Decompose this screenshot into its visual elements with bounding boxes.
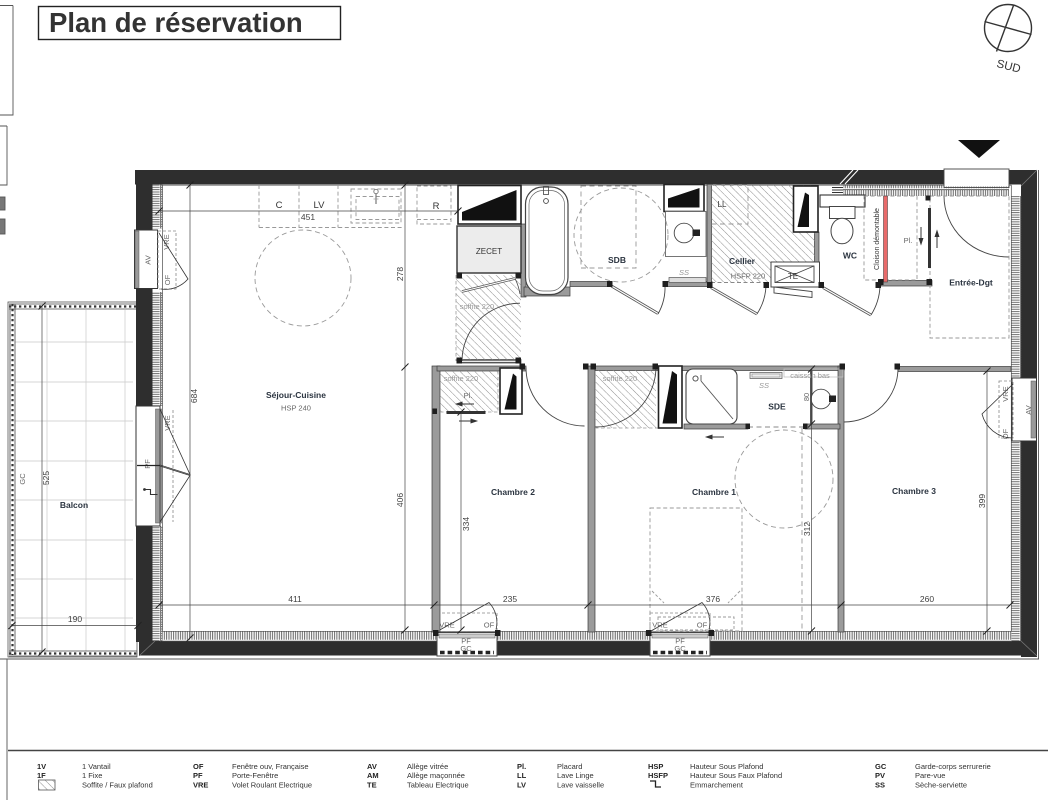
svg-text:PV: PV xyxy=(875,771,885,780)
svg-text:SDB: SDB xyxy=(608,255,626,265)
svg-text:Entrée-Dgt: Entrée-Dgt xyxy=(949,278,993,288)
svg-text:334: 334 xyxy=(461,517,471,531)
svg-text:SS: SS xyxy=(759,381,769,390)
svg-text:Plan de réservation: Plan de réservation xyxy=(49,7,303,38)
svg-text:Chambre 1: Chambre 1 xyxy=(692,487,736,497)
svg-text:Lave Linge: Lave Linge xyxy=(557,771,594,780)
svg-text:GC: GC xyxy=(875,762,887,771)
svg-text:AV: AV xyxy=(144,255,153,264)
svg-text:Volet Roulant Electrique: Volet Roulant Electrique xyxy=(232,781,312,790)
svg-text:VRE: VRE xyxy=(193,781,208,790)
svg-text:1V: 1V xyxy=(37,762,46,771)
svg-text:C: C xyxy=(276,200,283,211)
svg-text:GC: GC xyxy=(674,644,686,653)
svg-text:OF: OF xyxy=(697,621,708,630)
svg-text:399: 399 xyxy=(977,494,987,508)
svg-text:VRE: VRE xyxy=(652,621,667,630)
svg-text:312: 312 xyxy=(802,522,812,536)
svg-text:Balcon: Balcon xyxy=(60,500,88,510)
svg-text:caisson bas: caisson bas xyxy=(790,371,830,380)
svg-text:Pl.: Pl. xyxy=(464,391,473,400)
svg-text:451: 451 xyxy=(301,212,315,222)
svg-text:Soffite / Faux plafond: Soffite / Faux plafond xyxy=(82,781,153,790)
svg-text:Emmarchement: Emmarchement xyxy=(690,781,744,790)
svg-text:GC: GC xyxy=(460,644,472,653)
svg-text:525: 525 xyxy=(41,471,51,485)
svg-text:411: 411 xyxy=(288,594,302,604)
svg-text:Hauteur Sous Plafond: Hauteur Sous Plafond xyxy=(690,762,763,771)
svg-text:GC: GC xyxy=(18,473,27,485)
svg-text:soffite 220: soffite 220 xyxy=(460,302,494,311)
svg-text:Séjour-Cuisine: Séjour-Cuisine xyxy=(266,390,326,400)
svg-text:190: 190 xyxy=(68,614,82,624)
svg-text:LL: LL xyxy=(718,200,727,209)
svg-text:HSP: HSP xyxy=(648,762,663,771)
svg-text:HSP 240: HSP 240 xyxy=(281,404,311,413)
svg-text:AV: AV xyxy=(1024,405,1033,414)
svg-text:OF: OF xyxy=(193,762,204,771)
svg-text:soffite 220: soffite 220 xyxy=(444,374,478,383)
svg-text:Allège vitrée: Allège vitrée xyxy=(407,762,448,771)
svg-text:HSFP: HSFP xyxy=(648,771,668,780)
svg-text:Chambre 3: Chambre 3 xyxy=(892,486,936,496)
svg-text:260: 260 xyxy=(920,594,934,604)
svg-text:684: 684 xyxy=(189,389,199,403)
svg-text:HSFP 220: HSFP 220 xyxy=(731,272,765,281)
svg-text:Chambre 2: Chambre 2 xyxy=(491,487,535,497)
svg-text:Cloison démontable: Cloison démontable xyxy=(874,208,881,270)
svg-text:ZECET: ZECET xyxy=(476,247,502,256)
svg-text:278: 278 xyxy=(395,267,405,281)
svg-text:Placard: Placard xyxy=(557,762,582,771)
svg-text:235: 235 xyxy=(503,594,517,604)
svg-text:SS: SS xyxy=(875,781,885,790)
svg-text:Pare-vue: Pare-vue xyxy=(915,771,945,780)
svg-text:Lave vaisselle: Lave vaisselle xyxy=(557,781,604,790)
svg-text:OF: OF xyxy=(163,274,172,285)
svg-text:Hauteur Sous Faux Plafond: Hauteur Sous Faux Plafond xyxy=(690,771,782,780)
svg-text:LV: LV xyxy=(314,200,326,211)
svg-text:1 Vantail: 1 Vantail xyxy=(82,762,111,771)
svg-text:Garde-corps serrurerie: Garde-corps serrurerie xyxy=(915,762,991,771)
svg-text:SS: SS xyxy=(679,268,689,277)
svg-text:Pl.: Pl. xyxy=(517,762,526,771)
svg-text:Porte-Fenêtre: Porte-Fenêtre xyxy=(232,771,278,780)
svg-text:SDE: SDE xyxy=(768,402,786,412)
svg-text:406: 406 xyxy=(395,493,405,507)
svg-text:376: 376 xyxy=(706,594,720,604)
svg-text:Fenêtre ouv, Française: Fenêtre ouv, Française xyxy=(232,762,309,771)
svg-text:LV: LV xyxy=(517,781,526,790)
svg-text:AM: AM xyxy=(367,771,379,780)
svg-text:soffite 220: soffite 220 xyxy=(603,374,637,383)
svg-text:Tableau Electrique: Tableau Electrique xyxy=(407,781,469,790)
svg-text:1F: 1F xyxy=(37,771,46,780)
svg-text:TE: TE xyxy=(367,781,377,790)
svg-text:80: 80 xyxy=(802,393,811,401)
svg-text:WC: WC xyxy=(843,251,857,261)
svg-text:Pl.: Pl. xyxy=(904,236,913,245)
svg-text:LL: LL xyxy=(517,771,527,780)
svg-text:TE: TE xyxy=(788,272,798,281)
svg-text:Allège maçonnée: Allège maçonnée xyxy=(407,771,465,780)
svg-text:PF: PF xyxy=(143,459,152,469)
svg-text:Sèche-serviette: Sèche-serviette xyxy=(915,781,967,790)
svg-text:VRE: VRE xyxy=(439,621,454,630)
svg-text:PF: PF xyxy=(193,771,203,780)
svg-text:AV: AV xyxy=(367,762,377,771)
svg-text:R: R xyxy=(433,201,440,212)
svg-text:VRE: VRE xyxy=(162,234,171,249)
svg-text:1 Fixe: 1 Fixe xyxy=(82,771,102,780)
svg-text:Cellier: Cellier xyxy=(729,256,756,266)
svg-text:OF: OF xyxy=(484,621,495,630)
